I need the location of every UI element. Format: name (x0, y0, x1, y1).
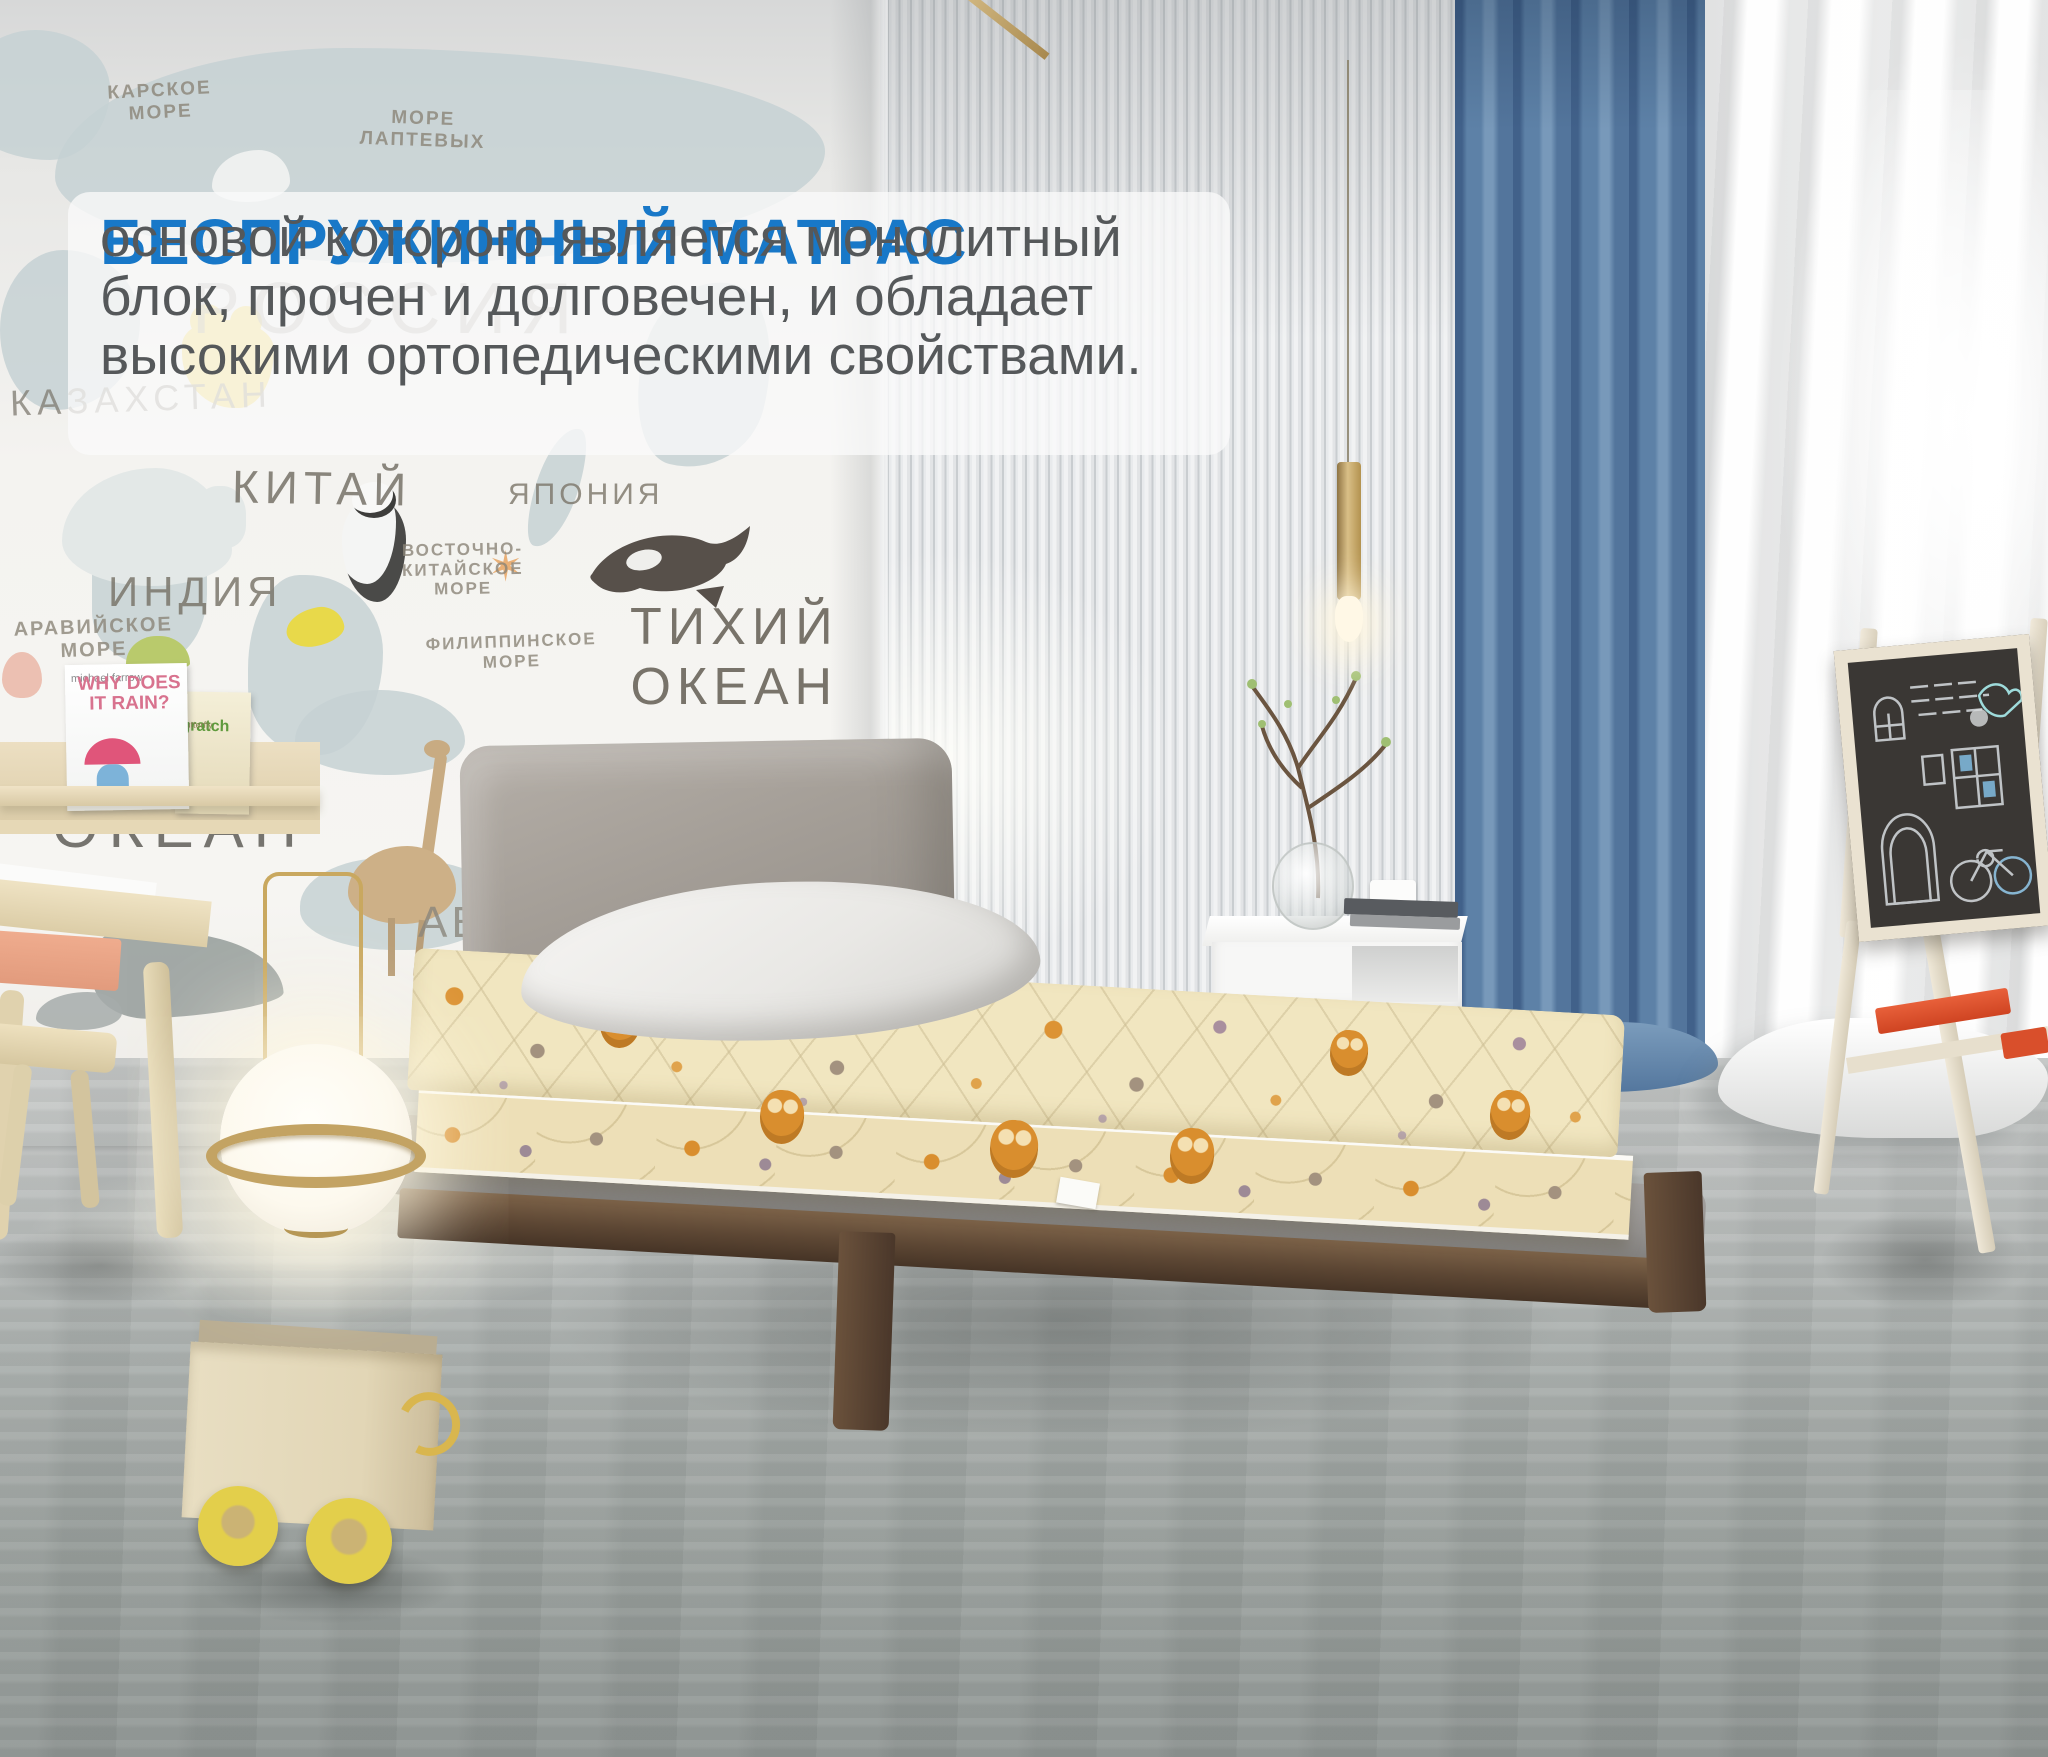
pendant-lamp-glow (1335, 596, 1363, 642)
map-label-kara-sea: КАРСКОЕ МОРЕ (107, 77, 213, 126)
chalkboard (1834, 634, 2048, 942)
pendant-wire (1347, 60, 1349, 464)
blue-curtain (1455, 0, 1705, 1082)
map-label-arabian-sea: АРАВИЙСКОЕ МОРЕ (13, 613, 174, 665)
emu-head-illustration (424, 740, 450, 758)
map-label-japan: ЯПОНИЯ (508, 478, 663, 513)
bed-leg-front (833, 1231, 896, 1431)
toy-cart-wheel (306, 1498, 392, 1584)
desk-drawer (0, 929, 122, 991)
bookshelf-lip (0, 820, 320, 834)
glass-vase (1272, 842, 1354, 930)
brass-pendant-lamp (1337, 462, 1361, 600)
nightstand-open-shelf (1352, 946, 1458, 1002)
map-label-china: КИТАЙ (232, 460, 413, 516)
promo-text-card: БЕСПРУЖИННЫЙ МАТРАС основой которого явл… (68, 192, 1230, 455)
product-photo-children-room: ✶ КАРСКОЕ МОРЕ МОРЕ ЛАПТЕВЫХ РОССИЯ КАЗА… (0, 0, 2048, 1757)
book-title: WHY DOES IT RAIN? (71, 673, 188, 715)
floor-lamp-base (284, 1218, 348, 1238)
map-label-india: ИНДИЯ (108, 568, 282, 616)
map-label-pacific-ocean: ТИХИЙ ОКЕАН (630, 598, 839, 718)
umbrella-icon (84, 738, 140, 765)
promo-body: основой которого является монолитный бло… (100, 208, 1142, 385)
bookshelf-rail (0, 786, 320, 806)
map-label-east-china-sea: ВОСТОЧНО- КИТАЙСКОЕ МОРЕ (401, 539, 524, 600)
emu-leg-illustration (388, 918, 395, 976)
bed-leg-right (1644, 1171, 1707, 1313)
chalkboard-drawing (1848, 648, 2041, 928)
floor-lamp-brass-ring (206, 1124, 426, 1188)
map-label-laptev-sea: МОРЕ ЛАПТЕВЫХ (359, 106, 486, 154)
toy-cart-wheel (198, 1486, 278, 1566)
map-label-philippine-sea: ФИЛИППИНСКОЕ МОРЕ (425, 629, 597, 674)
